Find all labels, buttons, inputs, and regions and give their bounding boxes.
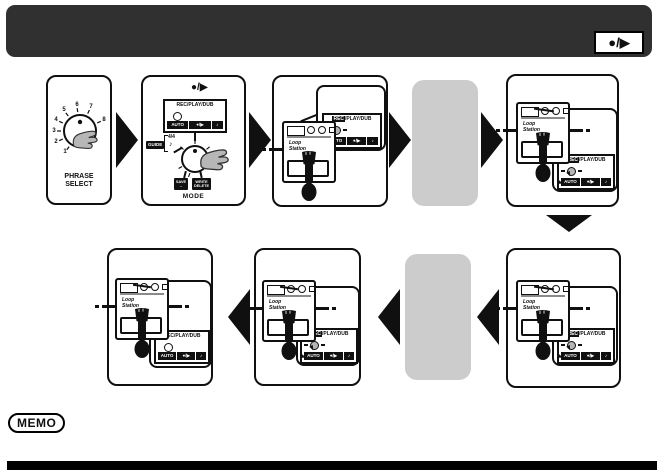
lcd-display: REC/PLAY/DUB AUTO ●/▶ ♪ [163, 99, 227, 133]
display-buttons: AUTO ●/▶ ♪ [167, 121, 223, 129]
footer-bar [7, 461, 657, 470]
foot-icon [131, 308, 153, 360]
auto-label: AUTO [167, 121, 188, 129]
dial-number: 6 [75, 102, 78, 108]
guide-badge: GUIDE [146, 141, 164, 149]
knob-label: MODE [143, 193, 244, 200]
record-play-icon: ●/▶ [191, 83, 208, 93]
flow-arrow-right [389, 112, 411, 168]
record-play-icon: ●/▶ [581, 178, 600, 186]
dial-number: 8 [102, 117, 105, 123]
note-icon: ♪ [212, 121, 223, 129]
led-indicator [164, 343, 173, 352]
pedal-illustration: LoopStation [262, 280, 316, 342]
memo-badge: MEMO [8, 413, 65, 433]
panel-step5: REC/PLAY/DUB AUTO ●/▶ ♪ LoopStation [506, 248, 621, 388]
panel-step4: REC/PLAY/DUB AUTO ●/▶ ♪ LoopStation [506, 74, 619, 207]
flow-arrow-right [249, 112, 271, 168]
dial-label: PHRASE SELECT [48, 173, 110, 189]
placeholder-card [412, 80, 478, 206]
record-play-icon: ●/▶ [347, 137, 367, 145]
panel-mode-knob: ●/▶ REC/PLAY/DUB AUTO ●/▶ ♪ GU [141, 75, 246, 206]
pedal-illustration: LoopStation [516, 102, 570, 164]
dial-number: 3 [52, 128, 55, 134]
panel-step3: REC/PLAY/DUB AUTO ●/▶ ♪ LoopStation [272, 75, 388, 207]
note-icon: ♪ [344, 352, 354, 360]
dial-number: 2 [54, 139, 57, 145]
note-icon: ♪ [169, 141, 173, 148]
flow-arrow-right [481, 112, 503, 168]
display-header: REC/PLAY/DUB [165, 101, 225, 108]
note-icon: ♪ [367, 137, 378, 145]
panel-step6: REC/PLAY/DUB AUTO ●/▶ ♪ LoopStation [254, 248, 361, 386]
pedal-knob-icon [318, 126, 326, 134]
hand-icon [70, 125, 110, 155]
pedal-knob-icon [151, 283, 159, 291]
auto-label: AUTO [158, 352, 176, 360]
panel-phrase-select: 1 2 3 4 5 6 7 8 PHRASE SELECT [46, 75, 112, 205]
record-play-icon: ●/▶ [608, 36, 629, 49]
auto-label: AUTO [561, 178, 580, 186]
pedal-knob-icon [298, 285, 306, 293]
pedal-display [287, 126, 305, 136]
auto-label: AUTO [304, 352, 323, 360]
placeholder-card [405, 254, 471, 380]
note-icon: ♪ [196, 352, 206, 360]
foot-icon [532, 310, 554, 362]
record-play-icon: ●/▶ [324, 352, 343, 360]
time-signature: 4/4 [168, 135, 175, 140]
foot-icon [532, 132, 554, 184]
note-icon: ♪ [601, 178, 611, 186]
pedal-illustration: LoopStation [516, 280, 570, 342]
record-play-icon: ●/▶ [177, 352, 195, 360]
foot-icon [298, 151, 320, 203]
write-delete-badge: WRITEDELETE [192, 178, 211, 190]
note-icon: ♪ [601, 352, 611, 360]
pedal-illustration: LoopStation [115, 278, 169, 340]
pedal-illustration: LoopStation [282, 121, 336, 183]
manual-page: ●/▶ 1 2 3 4 5 6 7 8 PHRASE SELECT [0, 0, 664, 475]
dial-number: 4 [54, 117, 57, 123]
hand-icon [197, 143, 243, 177]
flow-arrow-down [546, 215, 592, 232]
flow-arrow-left [228, 289, 250, 345]
flow-arrow-left [378, 289, 400, 345]
foot-icon [278, 310, 300, 362]
flow-arrow-left [477, 289, 499, 345]
dial-number: 5 [62, 107, 65, 113]
led-indicator [173, 112, 182, 121]
save-badge: SAVE→ [174, 178, 188, 190]
auto-label: AUTO [561, 352, 580, 360]
record-play-icon: ●/▶ [581, 352, 600, 360]
dial-number: 7 [89, 104, 92, 110]
flow-arrow-right [116, 112, 138, 168]
header-bar [6, 5, 652, 57]
pedal-knob-icon [307, 126, 315, 134]
dial-number: 1 [63, 149, 66, 155]
record-play-icon: ●/▶ [189, 121, 210, 129]
panel-step7: REC/PLAY/DUB AUTO ●/▶ ♪ LoopStation [107, 248, 213, 386]
record-play-badge: ●/▶ [594, 31, 644, 54]
